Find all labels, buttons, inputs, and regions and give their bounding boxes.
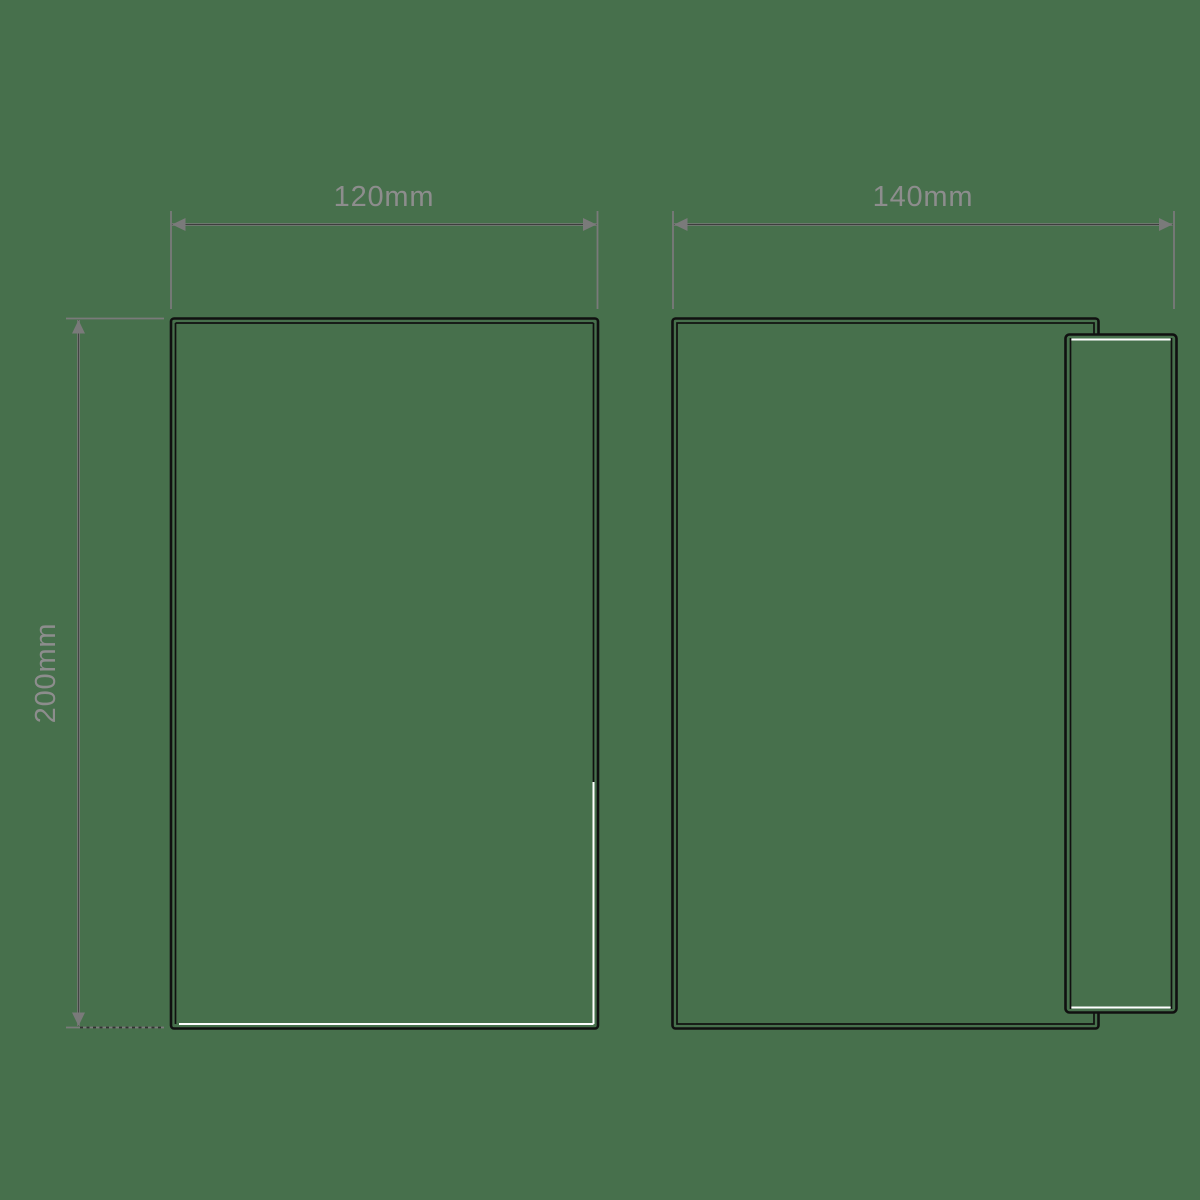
- left-panel-outline: [171, 319, 598, 1029]
- right-panel-outline: [673, 319, 1099, 1029]
- arrowhead-left-icon: [172, 218, 186, 231]
- right-width-dimension: 140mm: [673, 181, 1174, 309]
- technical-drawing: 120mm 200mm: [0, 0, 1200, 1200]
- arrowhead-right-icon: [1159, 218, 1173, 231]
- left-width-label: 120mm: [334, 181, 435, 213]
- left-height-dimension: 200mm: [30, 319, 164, 1028]
- right-width-label: 140mm: [873, 181, 974, 213]
- right-panel-inner-edge: [677, 323, 1094, 1024]
- left-height-label: 200mm: [30, 623, 62, 724]
- arrowhead-bottom-icon: [72, 1013, 85, 1027]
- arrowhead-left-icon: [674, 218, 688, 231]
- right-figure: 140mm: [673, 181, 1177, 1029]
- side-panel-outline: [1066, 335, 1177, 1013]
- arrowhead-right-icon: [583, 218, 597, 231]
- arrowhead-top-icon: [72, 320, 85, 334]
- left-figure: 120mm 200mm: [30, 181, 598, 1029]
- drawing-canvas: 120mm 200mm: [0, 0, 1200, 1200]
- left-width-dimension: 120mm: [171, 181, 598, 309]
